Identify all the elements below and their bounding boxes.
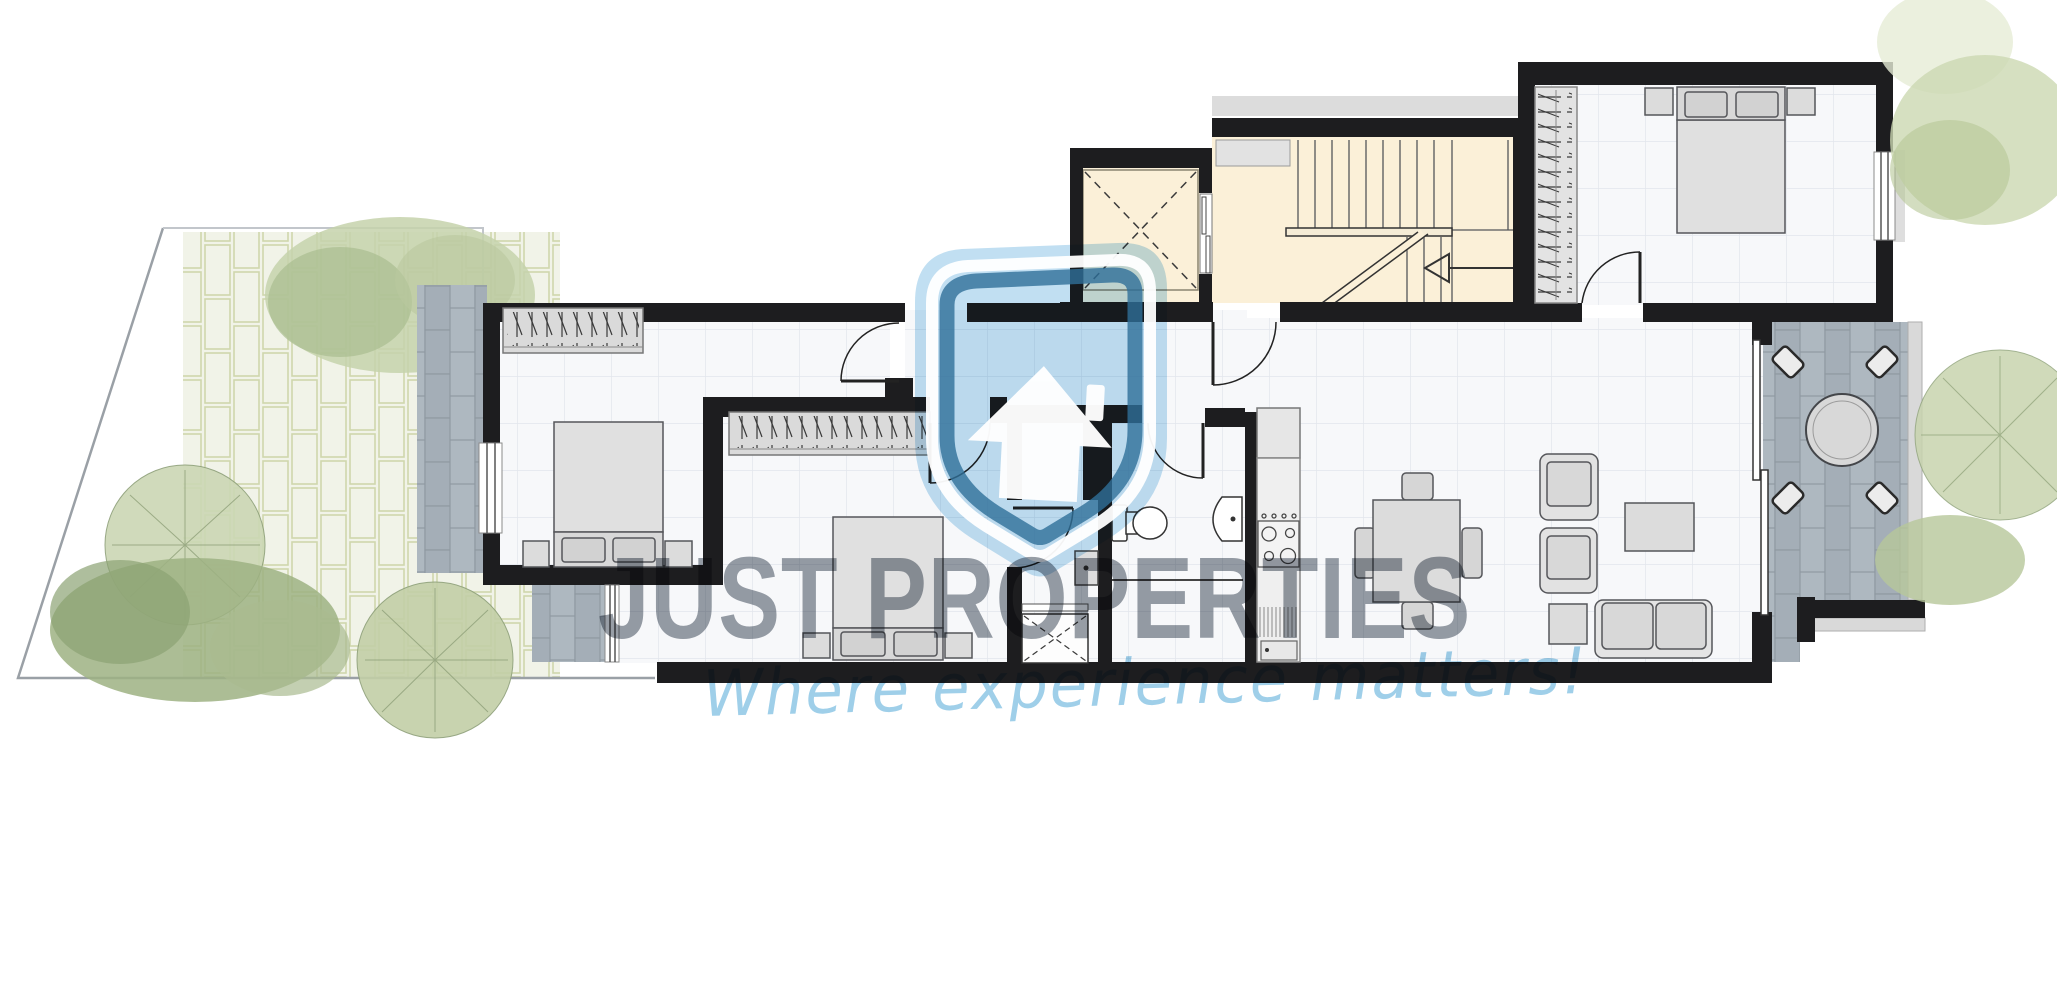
nightstand — [523, 541, 549, 567]
elevator-door — [1200, 194, 1212, 273]
wardrobe — [503, 308, 643, 353]
watermark-brand-text: JUST PROPERTIES — [598, 540, 1471, 656]
light-shaft-paving — [532, 585, 607, 662]
balcony-parapet — [1797, 618, 1925, 631]
floorplan-page: JUST PROPERTIES Where experience matters… — [0, 0, 2057, 986]
tree — [357, 582, 513, 738]
armchair — [1540, 454, 1598, 520]
armchair — [1540, 528, 1597, 593]
sofa — [1595, 600, 1712, 658]
bush — [1875, 515, 2025, 605]
side-passage-paving — [417, 285, 487, 573]
window — [479, 443, 502, 533]
nightstand — [1645, 88, 1673, 115]
floorplan-drawing — [0, 0, 2057, 986]
nightstand — [1787, 88, 1815, 115]
open-closet — [1535, 87, 1577, 303]
round-table — [1806, 394, 1878, 466]
tree — [1915, 350, 2057, 520]
wardrobe — [729, 412, 930, 455]
coffee-table — [1625, 503, 1694, 551]
fridge — [1257, 408, 1300, 458]
